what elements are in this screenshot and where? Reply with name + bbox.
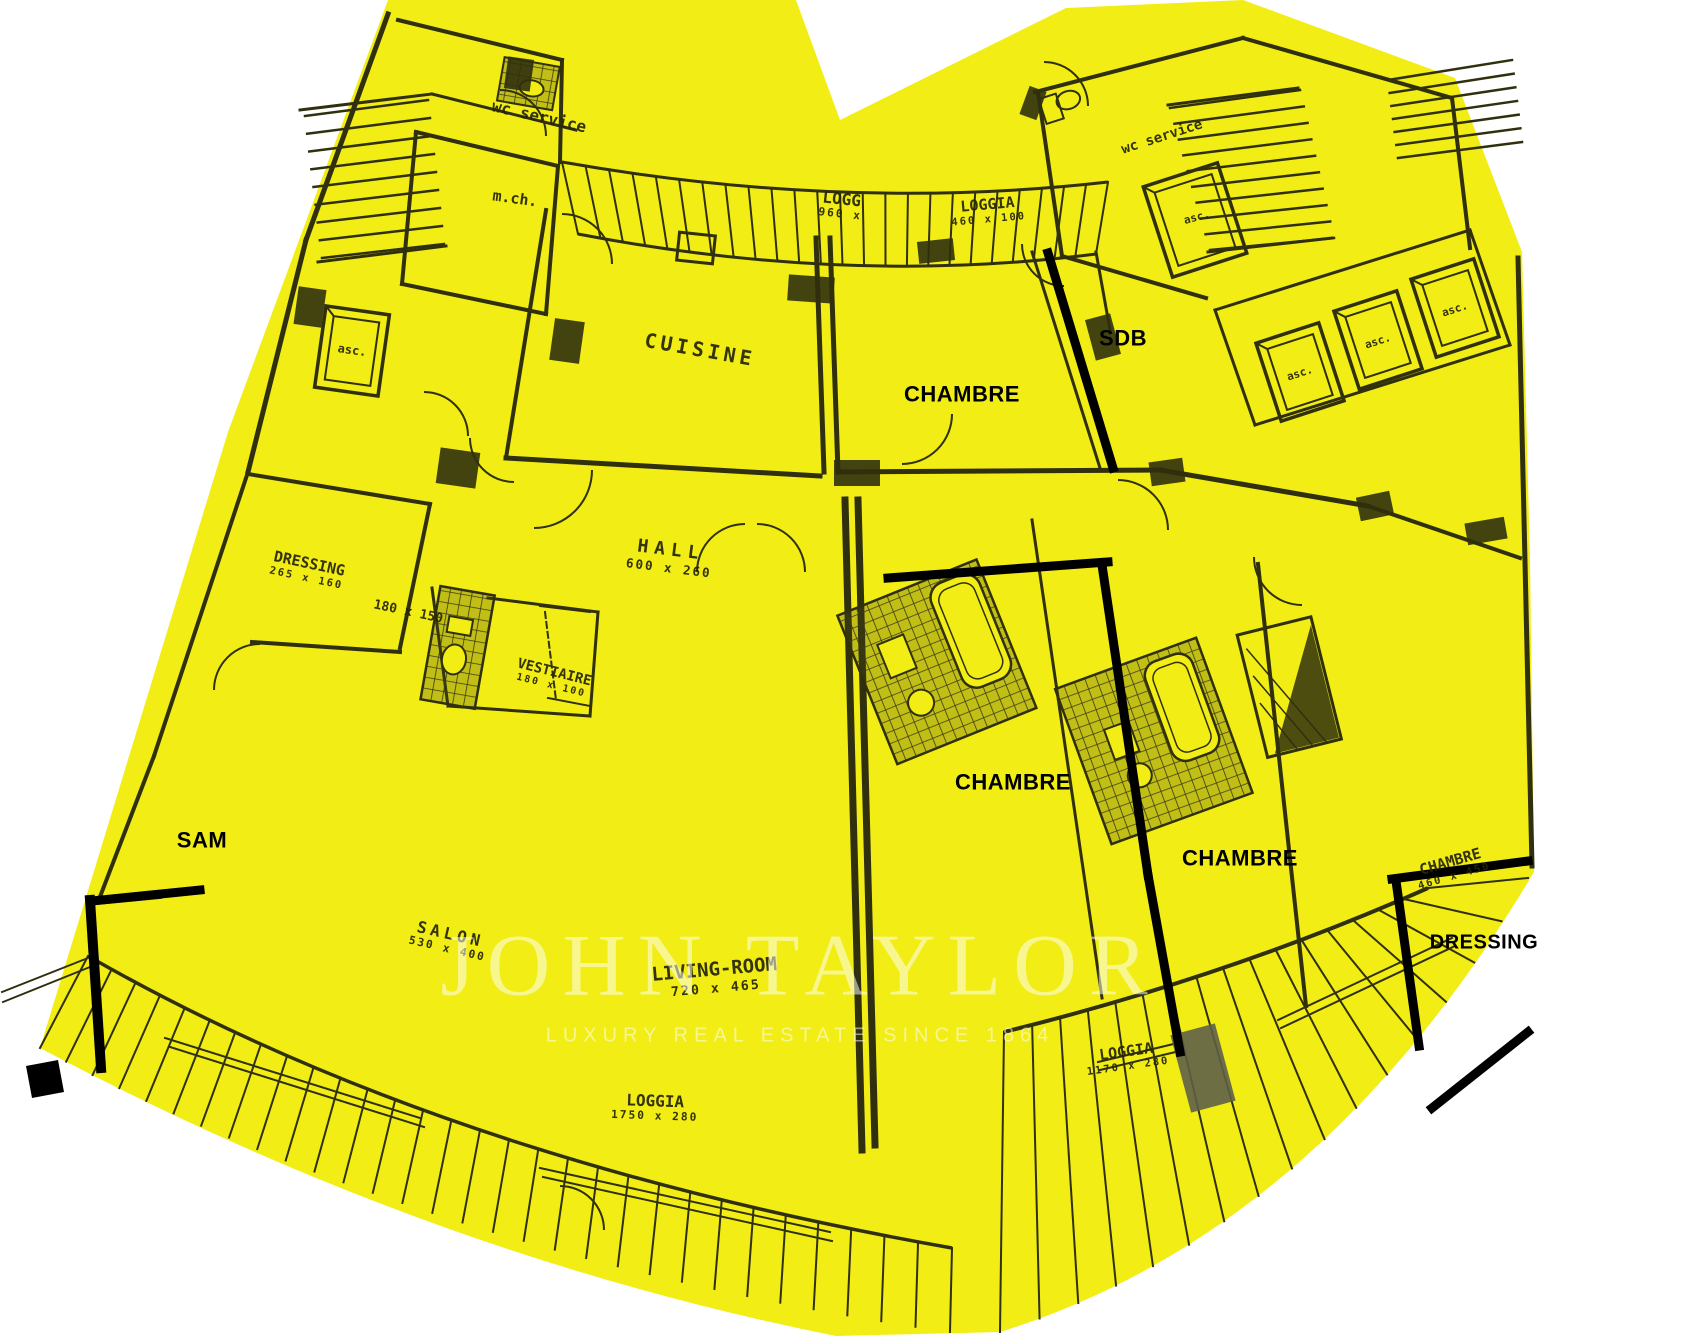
plan-drawing <box>0 0 1684 1336</box>
floor-plan: wc servicem.ch.asc.CUISINELOGG960 xLOGGI… <box>0 0 1684 1336</box>
